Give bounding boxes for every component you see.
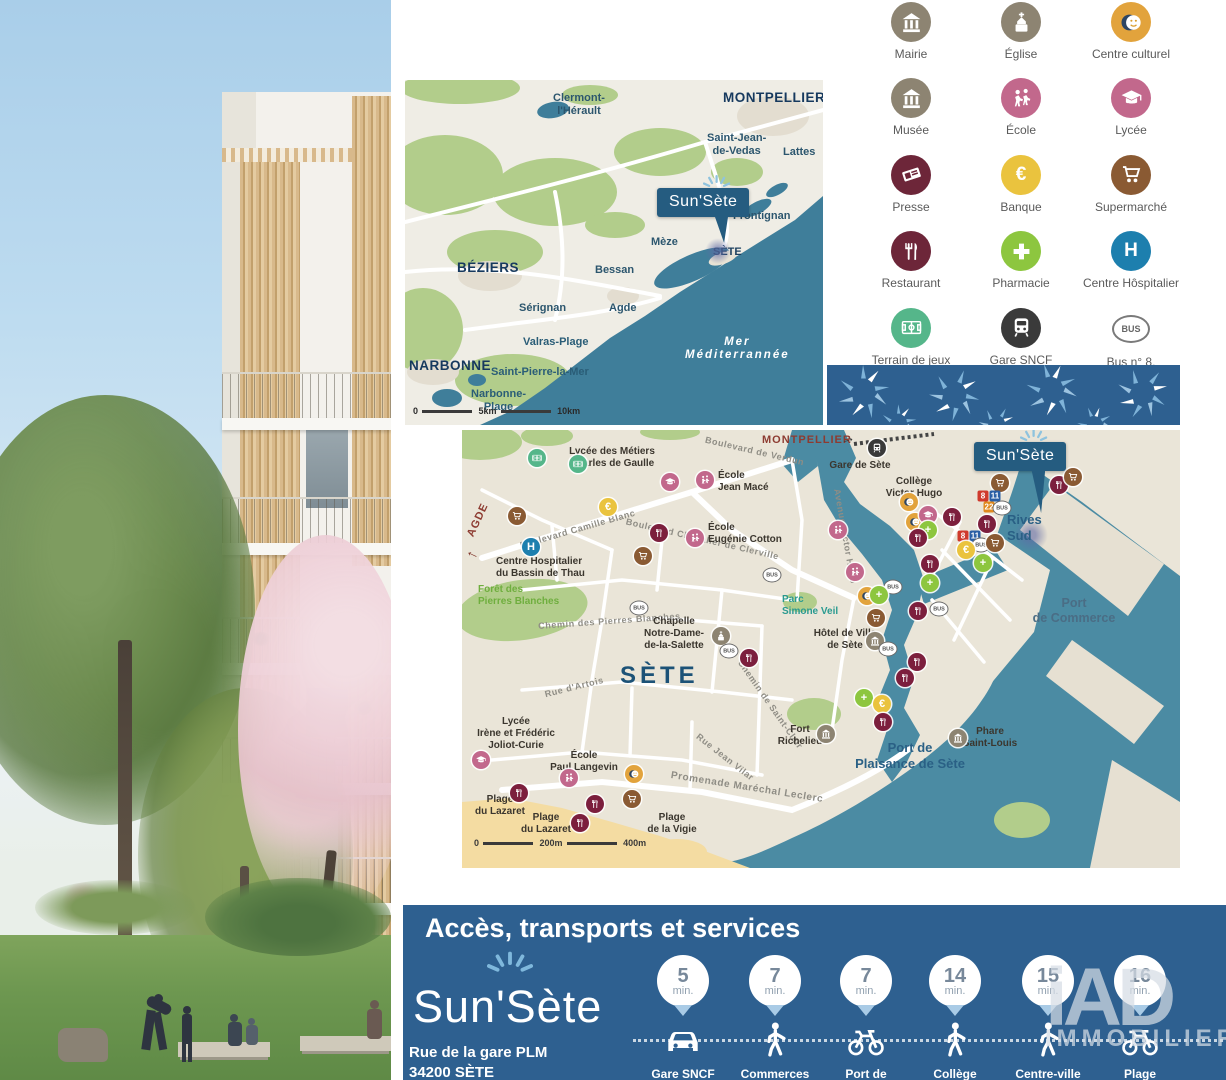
- restaurant-marker: [978, 515, 996, 533]
- transit-item-commerces: 7 min. Commerces: [727, 955, 823, 1080]
- restaurant-marker: [909, 529, 927, 547]
- cutlery-icon: [891, 231, 931, 271]
- iad-watermark: iAD IMMOBILIER: [1045, 957, 1226, 1051]
- restaurant-marker: [921, 555, 939, 573]
- person-silhouette: [136, 988, 184, 1060]
- people-sitting: [228, 1012, 268, 1052]
- restaurant-marker: [909, 602, 927, 620]
- tree-stump: [58, 1028, 108, 1062]
- poi-label: Rives Sud: [1007, 512, 1042, 543]
- map-label-town: Bessan: [595, 264, 634, 277]
- balcony-railing: [222, 372, 391, 420]
- legend-item-eglise: Église: [966, 2, 1076, 61]
- terrain-marker: [528, 449, 546, 467]
- project-flag: Sun'Sète: [657, 188, 749, 217]
- gradcap-icon: [1111, 78, 1151, 118]
- supermarche-marker: [1064, 468, 1082, 486]
- pharmacie-marker: +: [921, 574, 939, 592]
- map-label-town: Clermont- l'Hérault: [553, 92, 605, 117]
- bus-marker: BUS: [930, 602, 949, 617]
- supermarche-marker: [508, 507, 526, 525]
- bike-icon: [843, 1019, 889, 1061]
- info-banner: Accès, transports et services Sun'Sète R…: [403, 905, 1226, 1080]
- time-bubble: 14 min.: [929, 955, 981, 1007]
- poi-label: Plage du Lazaret: [521, 812, 571, 836]
- restaurant-marker: [510, 784, 528, 802]
- project-flag-label: Sun'Sète: [986, 447, 1054, 464]
- restaurant-marker: [908, 653, 926, 671]
- masks-icon: [1111, 2, 1151, 42]
- poi-label: Fort Richelieu: [778, 724, 822, 748]
- restaurant-marker: [874, 713, 892, 731]
- legend-item-centre-hospitalier: H Centre Hôspitalier: [1076, 231, 1186, 290]
- banque-marker: €: [957, 541, 975, 559]
- musee-marker: [817, 725, 835, 743]
- legend-item-restaurant: Restaurant: [856, 231, 966, 290]
- bus-marker: BUS: [763, 568, 782, 583]
- balcony-railing: [222, 497, 391, 545]
- hopital-marker: H: [522, 538, 540, 556]
- project-logo: Sun'Sète: [413, 981, 602, 1033]
- bus-oval-icon: BUS: [1112, 315, 1150, 343]
- project-flag: Sun'Sète: [974, 442, 1066, 471]
- map-label-town: Agde: [609, 302, 637, 315]
- culture-marker: [625, 765, 643, 783]
- legend-item-ecole: École: [966, 78, 1076, 137]
- time-bubble: 7 min.: [749, 955, 801, 1007]
- decorative-band: [827, 365, 1180, 425]
- legend-panel: Mairie Église Centre culturel Musée Écol…: [856, 2, 1188, 383]
- children-icon: [1001, 78, 1041, 118]
- property-rendering-photo: [0, 0, 391, 1080]
- legend-label: Mairie: [895, 47, 928, 61]
- restaurant-marker: [571, 814, 589, 832]
- wood-slat-column: [352, 96, 391, 566]
- restaurant-marker: [650, 524, 668, 542]
- legend-item-banque: € Banque: [966, 155, 1076, 214]
- townhall-icon: [891, 2, 931, 42]
- musee-marker: [949, 729, 967, 747]
- bus-marker: BUS: [630, 601, 649, 616]
- transit-item-port-plaisance: 7 min. Port de Plaisance de Sète: [818, 955, 914, 1080]
- poi-label: Forêt des Pierres Blanches: [478, 584, 559, 608]
- poi-label: Port de Commerce: [1033, 596, 1116, 626]
- bus-marker: BUS: [879, 642, 898, 657]
- restaurant-marker: [896, 669, 914, 687]
- iad-wordmark: IMMOBILIER: [1045, 1027, 1226, 1051]
- bus8-marker: 8: [978, 491, 989, 502]
- bus-marker: BUS: [720, 644, 739, 659]
- bus8-marker: 8: [958, 531, 969, 542]
- legend-item-supermarche: Supermarché: [1076, 155, 1186, 214]
- hedge: [205, 878, 391, 956]
- project-location-glow: [705, 238, 731, 264]
- chapelle-marker: [712, 627, 730, 645]
- ecole-marker: [560, 769, 578, 787]
- flower-shrubs: [35, 880, 195, 935]
- city-map: SÈTE MONTPELLIER → AGDE → Lycée des Méti…: [462, 430, 1180, 868]
- lycee-marker: [661, 473, 679, 491]
- poi-label: École Eugénie Cotton: [708, 522, 782, 546]
- restaurant-marker: [740, 649, 758, 667]
- supermarche-marker: [623, 790, 641, 808]
- poi-label: École Jean Macé: [718, 470, 769, 494]
- supermarche-marker: [991, 474, 1009, 492]
- legend-item-musee: Musée: [856, 78, 966, 137]
- city-name-label: SÈTE: [620, 662, 699, 690]
- train-icon: [1001, 308, 1041, 348]
- time-bubble: 7 min.: [840, 955, 892, 1007]
- supermarche-marker: [986, 534, 1004, 552]
- euro-icon: €: [1001, 155, 1041, 195]
- pharmacie-marker: +: [855, 689, 873, 707]
- map-label-town: Saint-Pierre-la-Mer: [491, 366, 589, 379]
- poi-label: Chapelle Notre-Dame- de-la-Salette: [644, 616, 704, 652]
- map-label-town: Mèze: [651, 236, 678, 249]
- sportsfield-icon: [891, 308, 931, 348]
- museum-icon: [891, 78, 931, 118]
- supermarche-marker: [634, 547, 652, 565]
- church-icon: [1001, 2, 1041, 42]
- map-label-city: BÉZIERS: [457, 260, 519, 276]
- restaurant-marker: [586, 795, 604, 813]
- project-flag-label: Sun'Sète: [669, 193, 737, 210]
- transit-item-college: 14 min. Collège Victor Hugo: [907, 955, 1003, 1080]
- legend-item-pharmacie: Pharmacie: [966, 231, 1076, 290]
- poi-label: École Paul Langevin: [550, 750, 618, 774]
- banque-marker: €: [599, 498, 617, 516]
- cross-icon: [1001, 231, 1041, 271]
- poi-label: Phare Saint-Louis: [963, 726, 1017, 750]
- map-label-city: NARBONNE: [409, 358, 491, 374]
- person-silhouette: [178, 1006, 198, 1064]
- legend-item-lycee: Lycée: [1076, 78, 1186, 137]
- legend-item-centre-culturel: Centre culturel: [1076, 2, 1186, 61]
- walk-icon: [932, 1019, 978, 1061]
- person-silhouette: [362, 1000, 388, 1056]
- poi-label: Centre Hospitalier du Bassin de Thau: [496, 556, 585, 580]
- culture-marker: [900, 493, 918, 511]
- bus-marker: BUS: [993, 501, 1012, 516]
- region-map: Clermont- l'Hérault MONTPELLIER Saint-Je…: [405, 80, 823, 425]
- poi-label: Plage de la Vigie: [647, 812, 696, 836]
- map-label-town: Saint-Jean- de-Vedas: [707, 132, 766, 157]
- hospital-h-icon: H: [1111, 231, 1151, 271]
- walk-icon: [752, 1019, 798, 1061]
- banner-title: Accès, transports et services: [425, 913, 800, 944]
- terrain-marker: [569, 455, 587, 473]
- restaurant-marker: [943, 508, 961, 526]
- scale-bar: 0 5km 10km: [413, 406, 580, 416]
- legend-item-presse: Presse: [856, 155, 966, 214]
- poi-label: Gare de Sète: [829, 460, 890, 472]
- transit-item-gare: 5 min. Gare SNCF de Sète: [635, 955, 731, 1080]
- ecole-marker: [686, 529, 704, 547]
- map-label-town: Sérignan: [519, 302, 566, 315]
- pharmacie-marker: +: [974, 554, 992, 572]
- map-label-town: Valras-Plage: [523, 336, 588, 349]
- scale-bar: 0 200m 400m: [474, 838, 646, 848]
- sun-rays-icon: [487, 951, 533, 979]
- time-bubble: 5 min.: [657, 955, 709, 1007]
- sea-label: Mer Méditerrannée: [685, 336, 790, 362]
- map-label-town: Lattes: [783, 146, 815, 159]
- legend-item-mairie: Mairie: [856, 2, 966, 61]
- starburst-pattern: [827, 365, 1180, 425]
- car-icon: [660, 1019, 706, 1061]
- balcony-slab: [222, 418, 391, 430]
- poi-label: Parc Simone Veil: [782, 594, 838, 618]
- newspaper-icon: [891, 155, 931, 195]
- page: Mairie Église Centre culturel Musée Écol…: [0, 0, 1226, 1080]
- map-label-city: MONTPELLIER: [723, 90, 823, 106]
- pharmacie-marker: +: [870, 586, 888, 604]
- ecole-marker: [696, 471, 714, 489]
- gare-marker: [868, 439, 886, 457]
- banque-marker: €: [873, 695, 891, 713]
- poi-label: Lycée Irène et Frédéric Joliot-Curie: [477, 716, 555, 752]
- ecole-marker: [846, 563, 864, 581]
- project-address: Rue de la gare PLM 34200 SÈTE: [409, 1043, 547, 1080]
- lycee-marker: [472, 751, 490, 769]
- cart-icon: [1111, 155, 1151, 195]
- poi-label: Port de Plaisance de Sète: [855, 740, 965, 771]
- supermarche-marker: [867, 609, 885, 627]
- ecole-marker: [829, 521, 847, 539]
